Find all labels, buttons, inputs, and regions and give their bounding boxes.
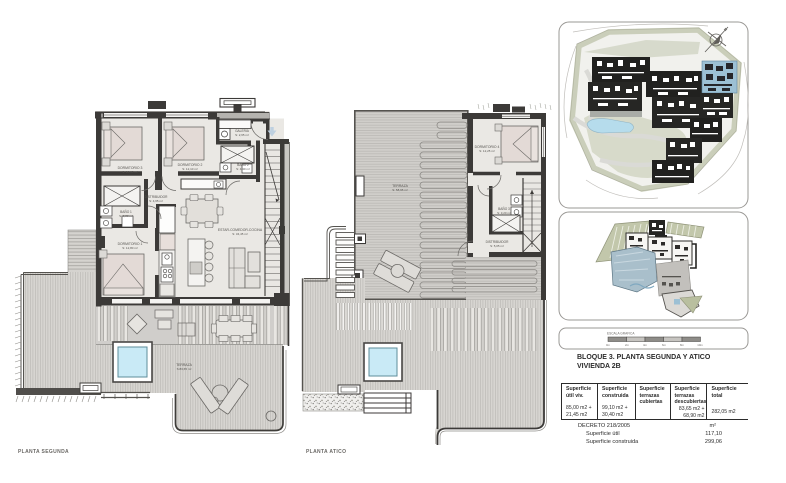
svg-text:S: 3,20 m²: S: 3,20 m²	[497, 211, 511, 215]
svg-text:S:83,65 m²: S:83,65 m²	[177, 367, 192, 371]
svg-text:S: 5,05 m²: S: 5,05 m²	[490, 244, 504, 248]
svg-text:PLANTA ATICO: PLANTA ATICO	[306, 449, 346, 455]
svg-text:S: 34,45 m²: S: 34,45 m²	[232, 232, 248, 236]
svg-text:S: 10,60 m²: S: 10,60 m²	[122, 170, 138, 174]
svg-text:4m: 4m	[643, 343, 648, 347]
svg-text:ESCALA GRAFICA: ESCALA GRAFICA	[607, 332, 635, 336]
svg-text:8m: 8m	[680, 343, 685, 347]
svg-text:10m: 10m	[697, 343, 703, 347]
svg-text:S: 3,80 m²: S: 3,80 m²	[119, 214, 133, 218]
svg-text:S: 12,80 m²: S: 12,80 m²	[122, 246, 138, 250]
svg-text:S: 12,10 m²: S: 12,10 m²	[182, 167, 198, 171]
svg-text:6m: 6m	[662, 343, 667, 347]
svg-text:S: 4,65 m²: S: 4,65 m²	[149, 199, 163, 203]
svg-text:S: 58,95 m²: S: 58,95 m²	[392, 188, 408, 192]
svg-text:S: 2,65 m²: S: 2,65 m²	[235, 133, 249, 137]
svg-text:0m: 0m	[606, 343, 611, 347]
svg-text:S: 4,40 m²: S: 4,40 m²	[236, 167, 250, 171]
svg-text:S: 12,25 m²: S: 12,25 m²	[479, 149, 495, 153]
svg-text:PLANTA SEGUNDA: PLANTA SEGUNDA	[18, 449, 69, 455]
svg-text:2m: 2m	[625, 343, 630, 347]
